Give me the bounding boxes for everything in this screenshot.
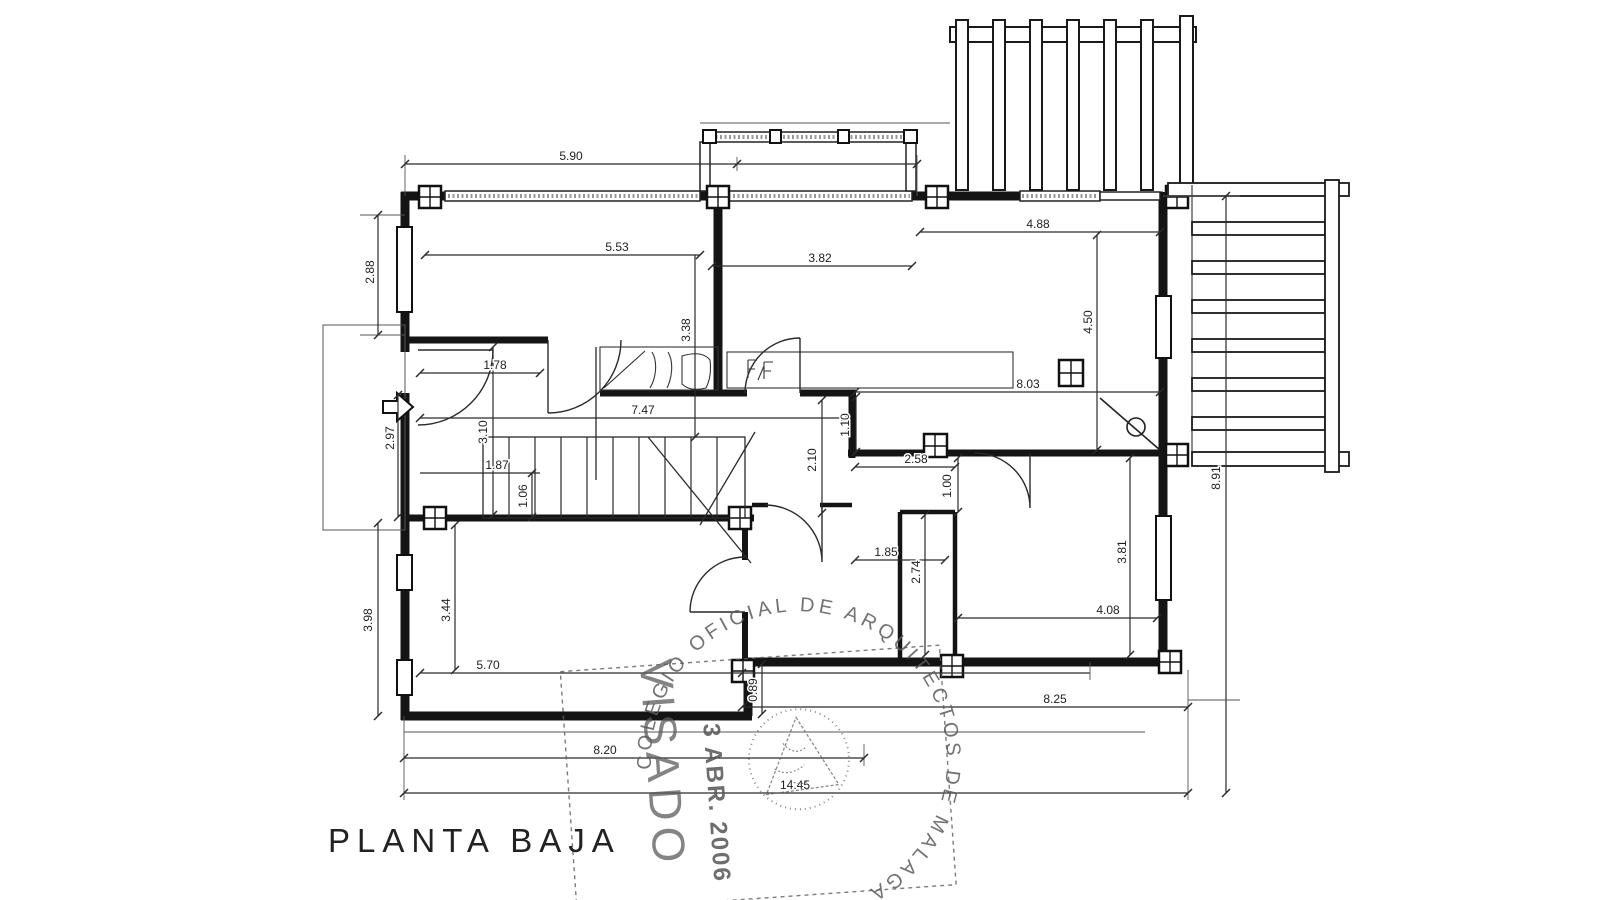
dimension-label: 4.08 — [1096, 603, 1120, 617]
dimension-label: 3.10 — [476, 420, 490, 444]
dimension-label: 1.85 — [874, 545, 898, 559]
dimension-label: 5.53 — [605, 240, 629, 254]
dimension-label: 7.47 — [631, 403, 655, 417]
dimension-label: 5.90 — [559, 149, 583, 163]
pergola — [950, 16, 1196, 192]
dimension-label: 1.87 — [485, 458, 509, 472]
dimension-label: 4.88 — [1026, 217, 1050, 231]
dimension-label: 1.78 — [483, 358, 507, 372]
walls — [401, 192, 1167, 720]
dimension-label: 14.45 — [780, 778, 810, 792]
dimension-label: 5.70 — [476, 658, 500, 672]
floor-plan-drawing: 5.90 2.88 5.53 3.38 3.82 4.88 4.50 1.78 … — [0, 0, 1600, 900]
side-pergola-beams — [1168, 180, 1349, 472]
floorplan-scan: 5.90 2.88 5.53 3.38 3.82 4.88 4.50 1.78 … — [0, 0, 1600, 900]
dimension-label: 1.10 — [838, 413, 852, 437]
fireplace — [1100, 398, 1160, 450]
doors — [418, 338, 1030, 612]
dimension-label: 8.03 — [1016, 377, 1040, 391]
dimension-label: 3.81 — [1115, 540, 1129, 564]
dimension-labels: 5.90 2.88 5.53 3.38 3.82 4.88 4.50 1.78 … — [361, 149, 1223, 792]
dimension-label: 8.20 — [593, 743, 617, 757]
dimension-label: 3.38 — [679, 318, 693, 342]
dimension-label: 1.06 — [516, 484, 530, 508]
stamp-date-text: 3 ABR. 2006 — [697, 722, 735, 883]
dimension-label: 4.50 — [1081, 310, 1095, 334]
dimension-label: 2.74 — [909, 560, 923, 584]
dimension-label: 3.82 — [808, 251, 832, 265]
dimension-label: 3.98 — [361, 608, 375, 632]
page-title: PLANTA BAJA — [328, 822, 621, 859]
stamp-emblem — [746, 706, 853, 813]
dimension-label: 1.00 — [940, 474, 954, 498]
wardrobe-sketch — [600, 347, 1013, 390]
dimension-label: 3.44 — [439, 598, 453, 622]
dimension-label: 0.89 — [746, 678, 760, 702]
dimension-label: 8.25 — [1043, 692, 1067, 706]
dimension-label: 2.58 — [904, 452, 928, 466]
dimension-label: 2.97 — [383, 426, 397, 450]
dimension-label: 2.10 — [805, 448, 819, 472]
dimension-label: 8.91 — [1209, 466, 1223, 490]
dimension-label: 2.88 — [363, 260, 377, 284]
